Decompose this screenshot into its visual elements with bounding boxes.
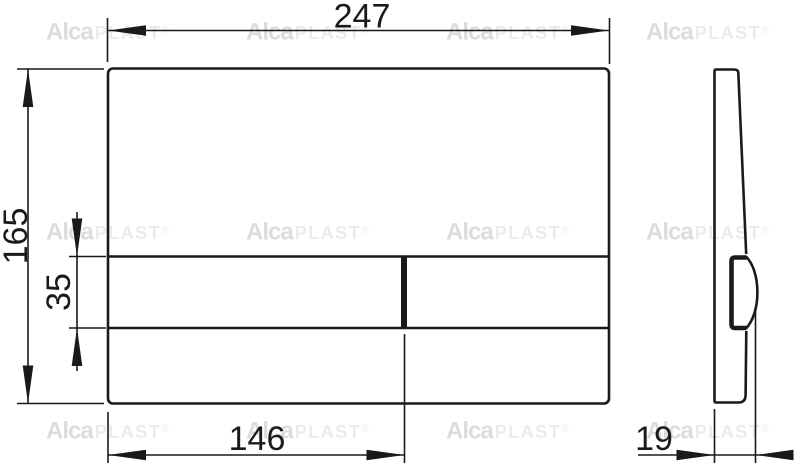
dim-width-247: 247 (108, 0, 610, 64)
arrowhead-inward-right (756, 450, 794, 461)
front-view (108, 69, 609, 404)
technical-drawing-page: AlcaPLAST®AlcaPLAST®AlcaPLAST®AlcaPLAST®… (0, 0, 800, 465)
dim-label-height: 165 (0, 208, 35, 265)
arrowhead-bottom (23, 366, 34, 404)
arrowhead-left (108, 450, 146, 461)
arrowhead-down (72, 219, 83, 257)
technical-drawing: 247 165 35 146 (0, 0, 800, 465)
flush-plate-outline (108, 69, 609, 404)
arrowhead-right (367, 450, 405, 461)
dim-height-165: 165 (0, 69, 104, 404)
dim-label-depth: 19 (635, 420, 673, 458)
side-button-base (732, 258, 747, 329)
dim-button-146: 146 (108, 334, 405, 463)
side-view (715, 70, 758, 403)
dim-band-35: 35 (40, 212, 106, 371)
arrowhead-inward-left (677, 450, 715, 461)
dim-label-band-height: 35 (40, 273, 78, 311)
arrowhead-up (72, 328, 83, 366)
dim-label-width: 247 (334, 0, 391, 36)
dim-label-button-width: 146 (229, 420, 286, 458)
side-profile-outline (715, 70, 747, 403)
arrowhead-right (571, 25, 609, 36)
arrowhead-left (108, 25, 146, 36)
arrowhead-top (23, 69, 34, 107)
